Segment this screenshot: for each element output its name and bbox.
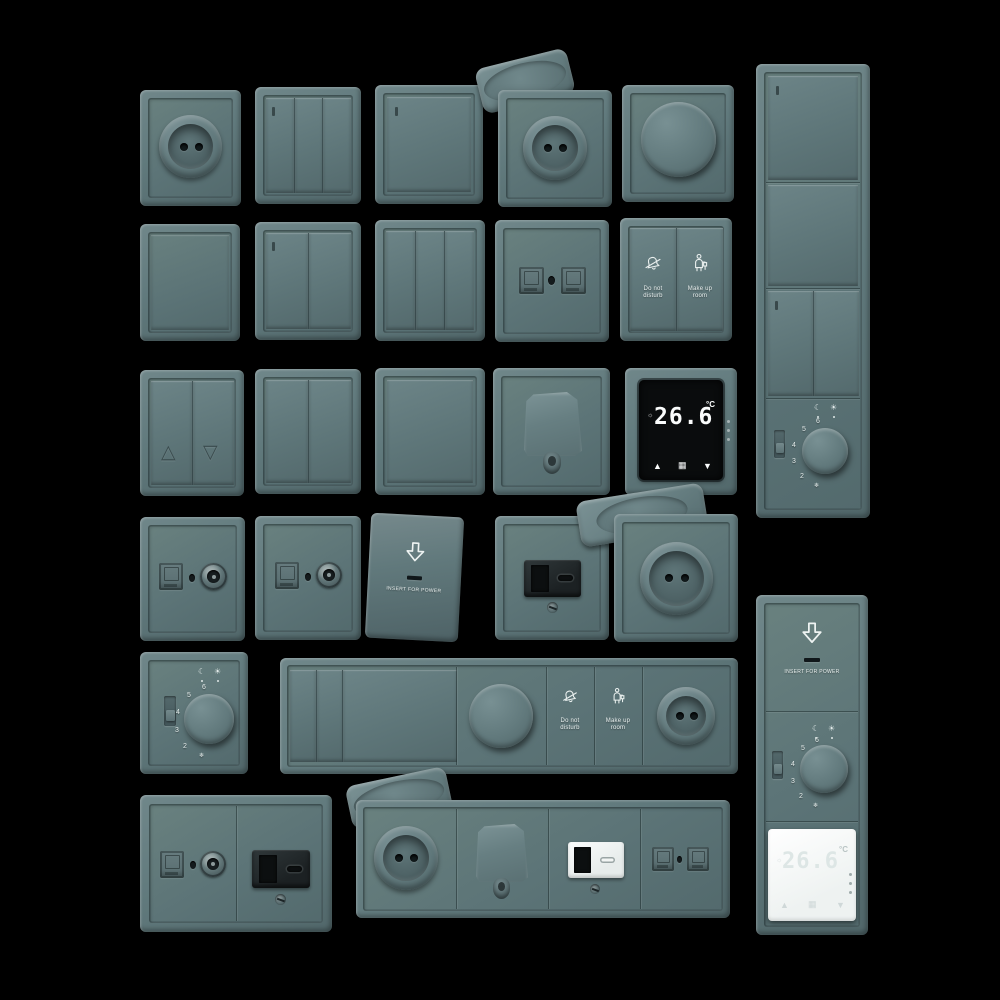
indicator-mark: [272, 107, 275, 116]
rocker: [387, 97, 471, 192]
thermostat-toggle: [164, 696, 176, 726]
plate-cable-outlet: [493, 368, 610, 495]
module-divider: [766, 711, 858, 712]
thermostat-toggle: [774, 430, 785, 458]
strip-6-gang: Do not disturb Make up room: [280, 658, 738, 774]
plate-1-gang-switch: [375, 368, 485, 495]
plate-lidded-socket: [498, 90, 612, 207]
socket-round: [657, 687, 715, 745]
socket-recess: [666, 696, 706, 736]
socket-pin-hole: [559, 144, 567, 152]
plate-3-gang-switch: [255, 87, 361, 204]
usb-c-port: [558, 575, 573, 581]
plate-tv-usb-combo: [140, 795, 332, 932]
cable-grommet: [493, 878, 510, 899]
do-not-disturb-button: Do not disturb: [630, 228, 676, 331]
dial-mark-5: 5: [801, 745, 805, 752]
plate-data-coax-socket: [255, 516, 361, 640]
plate-dual-data-socket: [495, 220, 609, 342]
socket-pin-hole: [665, 574, 673, 582]
indicator-mark: [395, 107, 398, 116]
indicator-mark: [272, 242, 275, 251]
plate-1-gang-switch: [375, 85, 483, 204]
dial-mark-4: 4: [791, 761, 795, 768]
mount-hole: [548, 276, 555, 285]
thermostat-dial-knob: [802, 428, 848, 474]
dimmer-knob: [469, 684, 533, 748]
down-triangle-icon: ▽: [203, 443, 218, 462]
rocker: [308, 233, 351, 329]
usb-c-port: [287, 866, 302, 872]
rocker: [266, 380, 308, 483]
mount-hole: [190, 861, 196, 869]
gang-divider: [548, 809, 549, 909]
dial-mark-4: 4: [792, 442, 796, 449]
module-divider: [766, 288, 860, 289]
moon-icon: ☾: [812, 725, 819, 733]
temperature-unit: °C: [706, 400, 715, 409]
socket-round: [374, 826, 438, 890]
plate-dial-thermostat: ☾ ☀ 6 5 4 3 2 ❄: [140, 652, 248, 774]
rocker: [316, 670, 343, 762]
shutter-down-rocker: ▽: [192, 381, 234, 485]
plate-blank: [140, 224, 240, 341]
insert-arrow-icon: [797, 619, 827, 649]
rocker: [444, 231, 474, 330]
gang-divider: [456, 667, 457, 765]
temp-down-button: ▼: [836, 901, 845, 910]
module-divider: [766, 182, 860, 183]
temp-up-button: ▲: [653, 462, 662, 471]
card-slot: [804, 658, 820, 662]
cable-cover: [476, 824, 528, 882]
tv-port: [160, 851, 184, 878]
module-divider: [766, 821, 858, 822]
heat-indicator-icon: ☼: [647, 412, 653, 419]
gang-divider: [236, 806, 237, 921]
snowflake-icon: ❄: [199, 753, 204, 760]
coax-connector: [200, 563, 227, 590]
screw: [590, 884, 600, 894]
plate-dnd-switch: Do not disturb Make up room: [620, 218, 732, 341]
strip-vertical-3-module: INSERT FOR POWER ☾ ☀ 6 5 4 3 2 ❄ ☼ 26.6 …: [756, 595, 868, 935]
usb-a-port: [259, 855, 277, 883]
gang-divider: [594, 667, 595, 765]
usb-module-white: [568, 842, 624, 878]
gang-divider: [642, 667, 643, 765]
dial-mark-2: 2: [183, 743, 187, 750]
plate-3-gang-switch: [375, 220, 485, 341]
insert-for-power-label: INSERT FOR POWER: [367, 586, 460, 596]
dimmer-knob: [641, 102, 716, 177]
plate-2-gang-switch: [255, 222, 361, 340]
make-up-room-label: Make up room: [594, 718, 642, 732]
plate-shutter-switch: △ ▽: [140, 370, 244, 496]
rocker: [386, 231, 415, 330]
usb-a-port: [531, 565, 549, 592]
insert-for-power-label: INSERT FOR POWER: [756, 670, 868, 675]
tv-port: [159, 563, 183, 590]
rocker: [768, 185, 858, 286]
dial-mark-4: 4: [176, 709, 180, 716]
usb-c-port: [600, 857, 615, 863]
coax-connector: [200, 851, 226, 877]
socket-recess: [383, 835, 429, 881]
sun-icon: ☀: [828, 725, 835, 733]
scene-3d-render: ☾ ☀ 6 5 4 3 2 ❄: [0, 0, 1000, 1000]
rocker: [308, 380, 351, 483]
dial-mark-5: 5: [187, 692, 191, 699]
cable-grommet: [543, 452, 561, 474]
socket-pin-hole: [676, 712, 684, 720]
plate-2-gang-switch: [255, 369, 361, 494]
dial-mark-6: 6: [815, 737, 819, 744]
dial-mark-6: 6: [816, 418, 820, 425]
side-dot: [727, 420, 730, 423]
maid-icon: [610, 687, 626, 706]
make-up-room-button: Make up room: [676, 228, 723, 331]
mount-hole: [305, 573, 311, 581]
snowflake-icon: ❄: [814, 483, 819, 490]
make-up-room-label: Make up room: [677, 286, 723, 300]
sun-icon: ☀: [214, 668, 221, 676]
moon-icon: ☾: [198, 668, 205, 676]
dial-dot: [831, 737, 833, 739]
temperature-unit: °C: [839, 845, 848, 854]
dial-dot: [217, 680, 219, 682]
shutter-up-rocker: △: [151, 381, 192, 485]
data-port: [561, 267, 586, 294]
socket-pin-hole: [681, 574, 689, 582]
plate-euro-socket: [140, 90, 241, 206]
usb-module: [252, 850, 310, 888]
socket-pin-hole: [180, 143, 188, 151]
dial-mark-3: 3: [791, 778, 795, 785]
strip-4-gang: [356, 800, 730, 918]
rocker: [768, 76, 858, 180]
dial-dot: [833, 416, 835, 418]
indicator-mark: [775, 301, 778, 310]
card-slot: [407, 576, 422, 581]
socket-pin-hole: [395, 854, 403, 862]
gang-divider: [546, 667, 547, 765]
plate-digital-thermostat: ☼ 26.6 °C ▲ ▦ ▼: [625, 368, 737, 495]
rocker: [322, 98, 351, 193]
temperature-readout: 26.6: [654, 404, 713, 430]
dial-mark-5: 5: [802, 426, 806, 433]
temp-down-button: ▼: [703, 462, 712, 471]
socket-pin-hole: [410, 854, 418, 862]
rocker: [387, 380, 473, 483]
dial-mark-2: 2: [799, 793, 803, 800]
plate-tv-socket: [140, 517, 245, 641]
socket-pin-hole: [544, 144, 552, 152]
indicator-mark: [776, 86, 779, 95]
maid-icon: [691, 253, 709, 274]
rocker: [294, 98, 323, 193]
socket-recess: [532, 125, 578, 171]
usb-a-port: [574, 847, 591, 873]
plate-key-card-switch: INSERT FOR POWER: [365, 513, 464, 643]
module-divider: [766, 398, 860, 399]
insert-arrow-icon: [401, 538, 430, 567]
gang-divider: [456, 809, 457, 909]
menu-button: ▦: [678, 461, 687, 470]
sun-icon: ☀: [830, 404, 837, 412]
socket-recess: [649, 551, 704, 606]
snowflake-icon: ❄: [813, 803, 818, 810]
rocker: [266, 98, 294, 193]
screw: [547, 602, 558, 613]
gang-divider: [640, 809, 641, 909]
thermostat-screen: ☼ 26.6 °C ▲ ▦ ▼: [639, 380, 723, 480]
strip-vertical-4-module: ☾ ☀ 6 5 4 3 2 ❄: [756, 64, 870, 518]
bell-crossed-icon: [643, 254, 663, 274]
thermostat-dial-knob: [800, 745, 848, 793]
plate-lidded-socket: [614, 514, 738, 642]
side-dot: [727, 429, 730, 432]
temperature-readout: 26.6: [782, 849, 839, 874]
bell-crossed-icon: [561, 688, 579, 706]
rocker: [342, 670, 457, 762]
cable-cover: [524, 392, 582, 456]
blank-cover: [151, 235, 229, 330]
rocker: [813, 291, 859, 396]
dial-mark-3: 3: [175, 727, 179, 734]
dial-mark-3: 3: [792, 458, 796, 465]
rocker: [768, 291, 813, 396]
data-port: [275, 562, 299, 589]
data-port: [519, 267, 544, 294]
side-dot: [849, 891, 852, 894]
socket-recess: [168, 124, 213, 169]
thermostat-screen-white: ☼ 26.6 °C ▲ ▦ ▼: [768, 829, 856, 921]
thermostat-toggle: [772, 751, 783, 779]
coax-connector: [316, 562, 342, 588]
socket-round: [640, 542, 713, 615]
rocker: [415, 231, 445, 330]
thermostat-dial-knob: [184, 694, 234, 744]
temp-up-button: ▲: [780, 901, 789, 910]
moon-icon: ☾: [814, 404, 821, 412]
socket-round: [159, 115, 222, 178]
up-triangle-icon: △: [161, 443, 176, 462]
plate-rotary-dimmer: [622, 85, 734, 202]
rocker: [266, 233, 308, 329]
do-not-disturb-label: Do not disturb: [630, 286, 676, 300]
socket-pin-hole: [690, 712, 698, 720]
screw: [275, 894, 286, 905]
dial-mark-2: 2: [800, 473, 804, 480]
dial-dot: [201, 680, 203, 682]
do-not-disturb-label: Do not disturb: [546, 718, 594, 732]
socket-round: [523, 116, 587, 180]
side-dot: [727, 438, 730, 441]
mount-hole: [189, 574, 195, 582]
socket-pin-hole: [195, 143, 203, 151]
data-port: [652, 847, 674, 871]
side-dot: [849, 882, 852, 885]
side-dot: [849, 873, 852, 876]
menu-button: ▦: [808, 900, 817, 909]
dial-mark-6: 6: [202, 684, 206, 691]
mount-hole: [677, 856, 682, 863]
usb-module: [524, 560, 581, 597]
data-port: [687, 847, 709, 871]
rocker: [290, 670, 316, 762]
